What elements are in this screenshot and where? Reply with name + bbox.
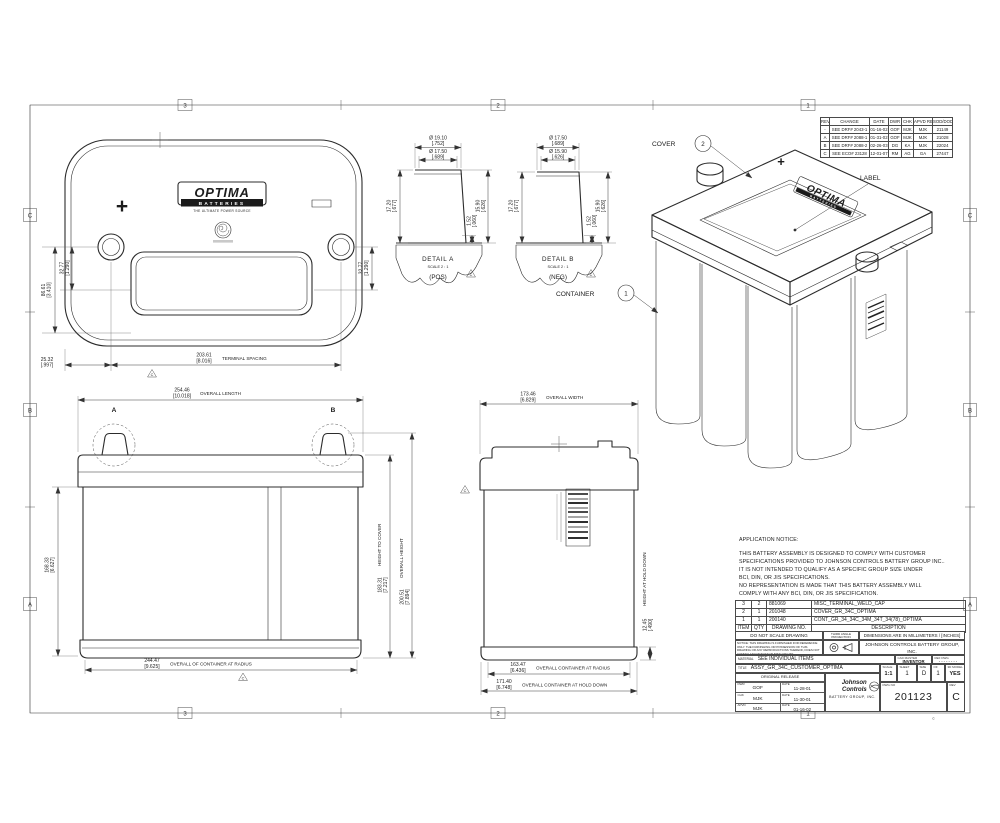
zone-left-b: B <box>28 408 32 414</box>
svg-text:2: 2 <box>701 141 705 148</box>
dim-lip: 1.52 [.060] <box>467 214 479 227</box>
dim-height-left: 17.20 [.677] <box>509 199 521 212</box>
bom-row: 21201048COVER_GR_34C_OPTIMA <box>736 608 966 616</box>
dim-container-radius: 244.47 [9.625] OVERALL OF CONTAINER AT R… <box>144 658 251 670</box>
flag-icon: C <box>467 270 476 278</box>
third-angle-symbol-cell <box>823 640 859 655</box>
size-cell: SIZE D <box>917 664 931 682</box>
detail-b-polarity: (NEG) <box>549 274 567 281</box>
barcode-label <box>557 489 590 546</box>
top-view: + OPTIMA BATTERIES THE ULTIMATE POWER SO… <box>41 132 378 377</box>
svg-text:[1.290]: [1.290] <box>364 260 370 276</box>
rev-cell: REV C <box>947 682 965 712</box>
dim-overall-width: 173.46 [6.829] OVERALL WIDTH <box>520 392 583 404</box>
svg-text:[.997]: [.997] <box>41 363 54 369</box>
detail-a-callout-circle <box>93 424 135 466</box>
svg-text:[.752]: [.752] <box>432 141 445 147</box>
zone-bottom-1: 1 <box>806 712 810 718</box>
dimensions-detail-a: Ø 19.10 [.752] Ø 17.50 [.689] 17.20 [.67… <box>387 136 497 244</box>
dim-left-inner: 32.77 [1.290] <box>60 260 72 276</box>
flag-icon: C <box>148 370 157 378</box>
label-label: LABEL <box>860 175 881 182</box>
model-cell: 3D MODEL YES <box>945 664 965 682</box>
material-cell: MATERIAL SEE INDIVIDUAL ITEMS <box>735 655 895 664</box>
svg-text:OVERALL LENGTH: OVERALL LENGTH <box>200 391 241 396</box>
ref-dwg-cell: REF DWG -------- <box>932 655 965 664</box>
dim-height-left: 17.20 [.677] <box>387 199 399 212</box>
bom-row: 11200140CONT_GR_34_34C_34M_34T_34(78)_OP… <box>736 616 966 624</box>
centerline-mark <box>152 132 168 148</box>
svg-text:C: C <box>464 489 467 493</box>
optima-logo: OPTIMA BATTERIES THE ULTIMATE POWER SOUR… <box>178 182 266 213</box>
svg-text:OVERALL HEIGHT: OVERALL HEIGHT <box>399 538 404 578</box>
svg-text:[.689]: [.689] <box>432 154 445 160</box>
dim-container-hold-down: 171.40 [6.748] OVERALL CONTAINER AT HOLD… <box>496 679 607 691</box>
iso-cells <box>656 241 907 468</box>
units-cell: DIMENSIONS ARE IN MILLIMETERS / [INCHES] <box>859 631 965 640</box>
isometric-view: + OPTIMA BATTERIES COVER 2 <box>556 136 932 469</box>
dim-post-height: 15.90 [.626] <box>596 199 608 212</box>
svg-text:HEIGHT TO COVER: HEIGHT TO COVER <box>377 523 382 566</box>
revision-row: ASEE DRF# 2088-101-31-02GOFMJKMJK21028 <box>821 134 953 142</box>
title-label: TITLE <box>738 666 747 670</box>
svg-text:HEIGHT AT HOLD DOWN: HEIGHT AT HOLD DOWN <box>642 552 647 606</box>
company-cell: JOHNSON CONTROLS BATTERY GROUP, INC. CON… <box>859 640 965 655</box>
label-recess <box>131 252 312 315</box>
dim-hold-down-height: 12.45 [.490] <box>643 618 655 631</box>
iso-terminal-left <box>697 163 723 186</box>
brand-subtitle: BATTERY GROUP, INC. <box>826 695 879 699</box>
drawing-sheet: 3 2 1 3 2 1 C B A C B A © + OPTIMA BATTE… <box>0 0 1000 823</box>
svg-text:[1.290]: [1.290] <box>65 260 71 276</box>
detail-b-scale: SCALE 2 : 1 <box>548 265 569 269</box>
dim-container-radius: 163.47 [6.436] OVERALL CONTAINER AT RADI… <box>510 662 610 674</box>
detail-a-mark: A <box>112 407 117 414</box>
legal-notice-cell: NOTICE: THIS DRAWING IS FURNISHED FOR RE… <box>735 640 823 655</box>
zone-top-1: 1 <box>806 104 810 110</box>
svg-text:[8.016]: [8.016] <box>196 359 212 365</box>
zone-right-a: A <box>968 602 972 608</box>
dim-height-to-cover: 183.31 [7.217] <box>378 577 390 593</box>
revision-table: REVCHANGEDATEDWRCHKAPVD REQSOD/DOD# -SEE… <box>820 117 952 158</box>
svg-text:[6.627]: [6.627] <box>50 557 56 573</box>
svg-text:[3.410]: [3.410] <box>47 282 53 298</box>
detail-b-callout-circle <box>312 424 354 466</box>
svg-text:[.490]: [.490] <box>648 618 654 631</box>
logo-tagline: THE ULTIMATE POWER SOURCE <box>193 209 251 213</box>
dim-overall-height: 200.51 [7.894] <box>400 589 412 605</box>
company-name: JOHNSON CONTROLS BATTERY GROUP, INC. <box>860 642 964 655</box>
dimensions-top-view: 86.61 [3.410] 32.77 [1.290] 32.77 [1.290… <box>41 247 378 377</box>
spiralcell-icon <box>213 222 233 243</box>
of-cell: OF 1 <box>931 664 945 682</box>
material-label: MATERIAL <box>738 657 754 661</box>
dim-post-height: 15.90 [.626] <box>476 199 488 212</box>
iso-label-recess <box>700 180 866 256</box>
revision-header-row: REVCHANGEDATEDWRCHKAPVD REQSOD/DOD# <box>821 118 953 126</box>
dim-terminal-spacing: 203.61 [8.016] TERMINAL SPACING <box>196 353 267 365</box>
dwg-no-cell: DWG NO 201123 <box>880 682 947 712</box>
svg-text:[.060]: [.060] <box>592 214 598 227</box>
revision-letter: C <box>948 691 964 703</box>
title-block: DO NOT SCALE DRAWING THIRD ANGLE PROJECT… <box>735 631 965 712</box>
optima-logo-name: OPTIMA <box>194 185 249 200</box>
plus-mark: + <box>777 154 785 169</box>
svg-text:TERMINAL SPACING: TERMINAL SPACING <box>222 356 267 361</box>
release-row: APVDMJK DATE01-16-02 <box>736 703 824 713</box>
zone-right-c: C <box>968 213 973 219</box>
svg-text:[6.748]: [6.748] <box>496 685 512 691</box>
zone-left-a: A <box>28 602 32 608</box>
svg-text:[9.625]: [9.625] <box>144 664 160 670</box>
svg-text:[6.829]: [6.829] <box>520 398 536 404</box>
flag-icon: C <box>461 486 470 494</box>
scale-cell: SCALE 1:1 <box>880 664 897 682</box>
original-release-header: ORIGINAL RELEASE <box>736 674 824 682</box>
svg-text:OVERALL CONTAINER AT RADIUS: OVERALL CONTAINER AT RADIUS <box>536 666 610 671</box>
globe-swirl-icon <box>869 680 879 693</box>
dim-lip: 1.52 [.060] <box>587 214 599 227</box>
application-notice: APPLICATION NOTICE: THIS BATTERY ASSEMBL… <box>739 537 964 599</box>
detail-a-scale: SCALE 2 : 1 <box>428 265 449 269</box>
zone-bottom-2: 2 <box>496 712 500 718</box>
copyright-mark: © <box>932 716 935 721</box>
svg-text:[.677]: [.677] <box>514 199 520 212</box>
application-notice-title: APPLICATION NOTICE: <box>739 537 964 545</box>
svg-text:[.626]: [.626] <box>601 199 607 212</box>
front-view: A B 254.46 [10.018] OVERALL LENGTH 168.3… <box>45 388 417 681</box>
drawing-number: 201123 <box>881 691 946 703</box>
svg-text:OVERALL CONTAINER AT HOLD DOWN: OVERALL CONTAINER AT HOLD DOWN <box>522 683 607 688</box>
cad-master-cell: CAD MASTER INVENTOR <box>895 655 932 664</box>
iso-optima-logo: OPTIMA BATTERIES <box>793 176 858 218</box>
material-value: SEE INDIVIDUAL ITEMS <box>758 656 814 662</box>
zone-top-3: 3 <box>183 104 187 110</box>
dimensions-front-view: 254.46 [10.018] OVERALL LENGTH 168.33 [6… <box>45 388 417 681</box>
release-row: CHKMJK DATE11-30-01 <box>736 692 824 703</box>
svg-text:C: C <box>151 373 154 377</box>
svg-text:C: C <box>470 273 473 277</box>
original-release-block: ORIGINAL RELEASE DWRGOF DATE11-28-01 CHK… <box>735 673 825 712</box>
dim-right: 32.77 [1.290] <box>359 260 371 276</box>
zone-bottom-3: 3 <box>183 712 187 718</box>
svg-text:OVERALL OF CONTAINER AT RADIUS: OVERALL OF CONTAINER AT RADIUS <box>170 662 252 667</box>
svg-text:[.060]: [.060] <box>472 214 478 227</box>
detail-b-title: DETAIL B <box>542 256 574 263</box>
detail-b-view: Ø 17.50 [.689] Ø 15.90 [.626] 17.20 [.67… <box>509 136 617 286</box>
svg-text:1: 1 <box>624 291 628 298</box>
flag-icon: C <box>587 270 596 278</box>
brand-name: Johnson Controls <box>826 680 867 693</box>
dim-left-outer: 86.61 [3.410] <box>41 282 53 298</box>
minus-mark <box>312 200 331 207</box>
bom-row: 32881069MISC_TERMINAL_WELD_CAP <box>736 601 966 609</box>
detail-b-mark: B <box>331 407 336 414</box>
third-angle-cell: THIRD ANGLE PROJECTION <box>823 631 859 640</box>
callout-container: CONTAINER 1 <box>556 285 658 313</box>
centerline-mark <box>551 436 567 452</box>
svg-text:OVERALL WIDTH: OVERALL WIDTH <box>546 395 583 400</box>
plus-mark: + <box>116 195 128 218</box>
do-not-scale-cell: DO NOT SCALE DRAWING <box>735 631 823 640</box>
dim-overall-length: 254.46 [10.018] OVERALL LENGTH <box>173 388 241 400</box>
iso-cover-top <box>652 150 932 282</box>
svg-text:[7.217]: [7.217] <box>383 577 389 593</box>
flag-icon: C <box>239 673 248 681</box>
release-row: DWRGOF DATE11-28-01 <box>736 682 824 693</box>
container-label: CONTAINER <box>556 291 595 298</box>
svg-text:C: C <box>242 677 245 681</box>
callout-cover: COVER 2 <box>652 136 752 179</box>
zone-top-2: 2 <box>496 104 500 110</box>
svg-text:[10.018]: [10.018] <box>173 394 192 400</box>
svg-text:[.677]: [.677] <box>392 199 398 212</box>
positive-terminal <box>98 234 124 260</box>
revision-row: CSEE ECO# 2312812-01-07RMAGGA27447 <box>821 150 953 158</box>
bom-table: 32881069MISC_TERMINAL_WELD_CAP 21201048C… <box>735 600 965 633</box>
zone-right-b: B <box>968 408 972 414</box>
cover-label: COVER <box>652 141 676 148</box>
svg-text:[7.894]: [7.894] <box>405 589 411 605</box>
side-view: 173.46 [6.829] OVERALL WIDTH 12.45 [.490… <box>461 392 657 696</box>
svg-text:[6.436]: [6.436] <box>510 668 526 674</box>
dim-offset: 25.32 [.997] <box>41 357 54 369</box>
revision-row: -SEE DRF# 2043-101-16-02GOFMJKMJK21149 <box>821 126 953 134</box>
dimensions-side-view: 173.46 [6.829] OVERALL WIDTH 12.45 [.490… <box>461 392 657 696</box>
zone-left-c: C <box>28 213 33 219</box>
revision-row: BSEE DRF# 2088-202-26-03DGKAMJK22024 <box>821 142 953 150</box>
svg-text:[.626]: [.626] <box>552 154 565 160</box>
drawing-title: ASSY_GR_34C_CUSTOMER_OPTIMA <box>751 665 843 671</box>
dimensions-detail-b: Ø 17.50 [.689] Ø 15.90 [.626] 17.20 [.67… <box>509 136 617 244</box>
detail-a-view: Ø 19.10 [.752] Ø 17.50 [.689] 17.20 [.67… <box>387 136 497 286</box>
svg-text:C: C <box>590 273 593 277</box>
third-angle-projection-icon <box>828 642 854 653</box>
svg-text:[.626]: [.626] <box>481 199 487 212</box>
detail-a-title: DETAIL A <box>422 256 454 263</box>
sheet-cell: SHEET 1 <box>897 664 917 682</box>
svg-text:[.689]: [.689] <box>552 141 565 147</box>
negative-terminal <box>328 234 354 260</box>
johnson-controls-logo: Johnson Controls BATTERY GROUP, INC. <box>825 673 880 712</box>
iso-barcode <box>866 294 886 339</box>
dim-left-height: 168.33 [6.627] <box>45 557 57 573</box>
detail-a-polarity: (POS) <box>429 274 447 281</box>
title-cell: TITLE ASSY_GR_34C_CUSTOMER_OPTIMA <box>735 664 880 673</box>
batteries-label: BATTERIES <box>199 201 246 207</box>
